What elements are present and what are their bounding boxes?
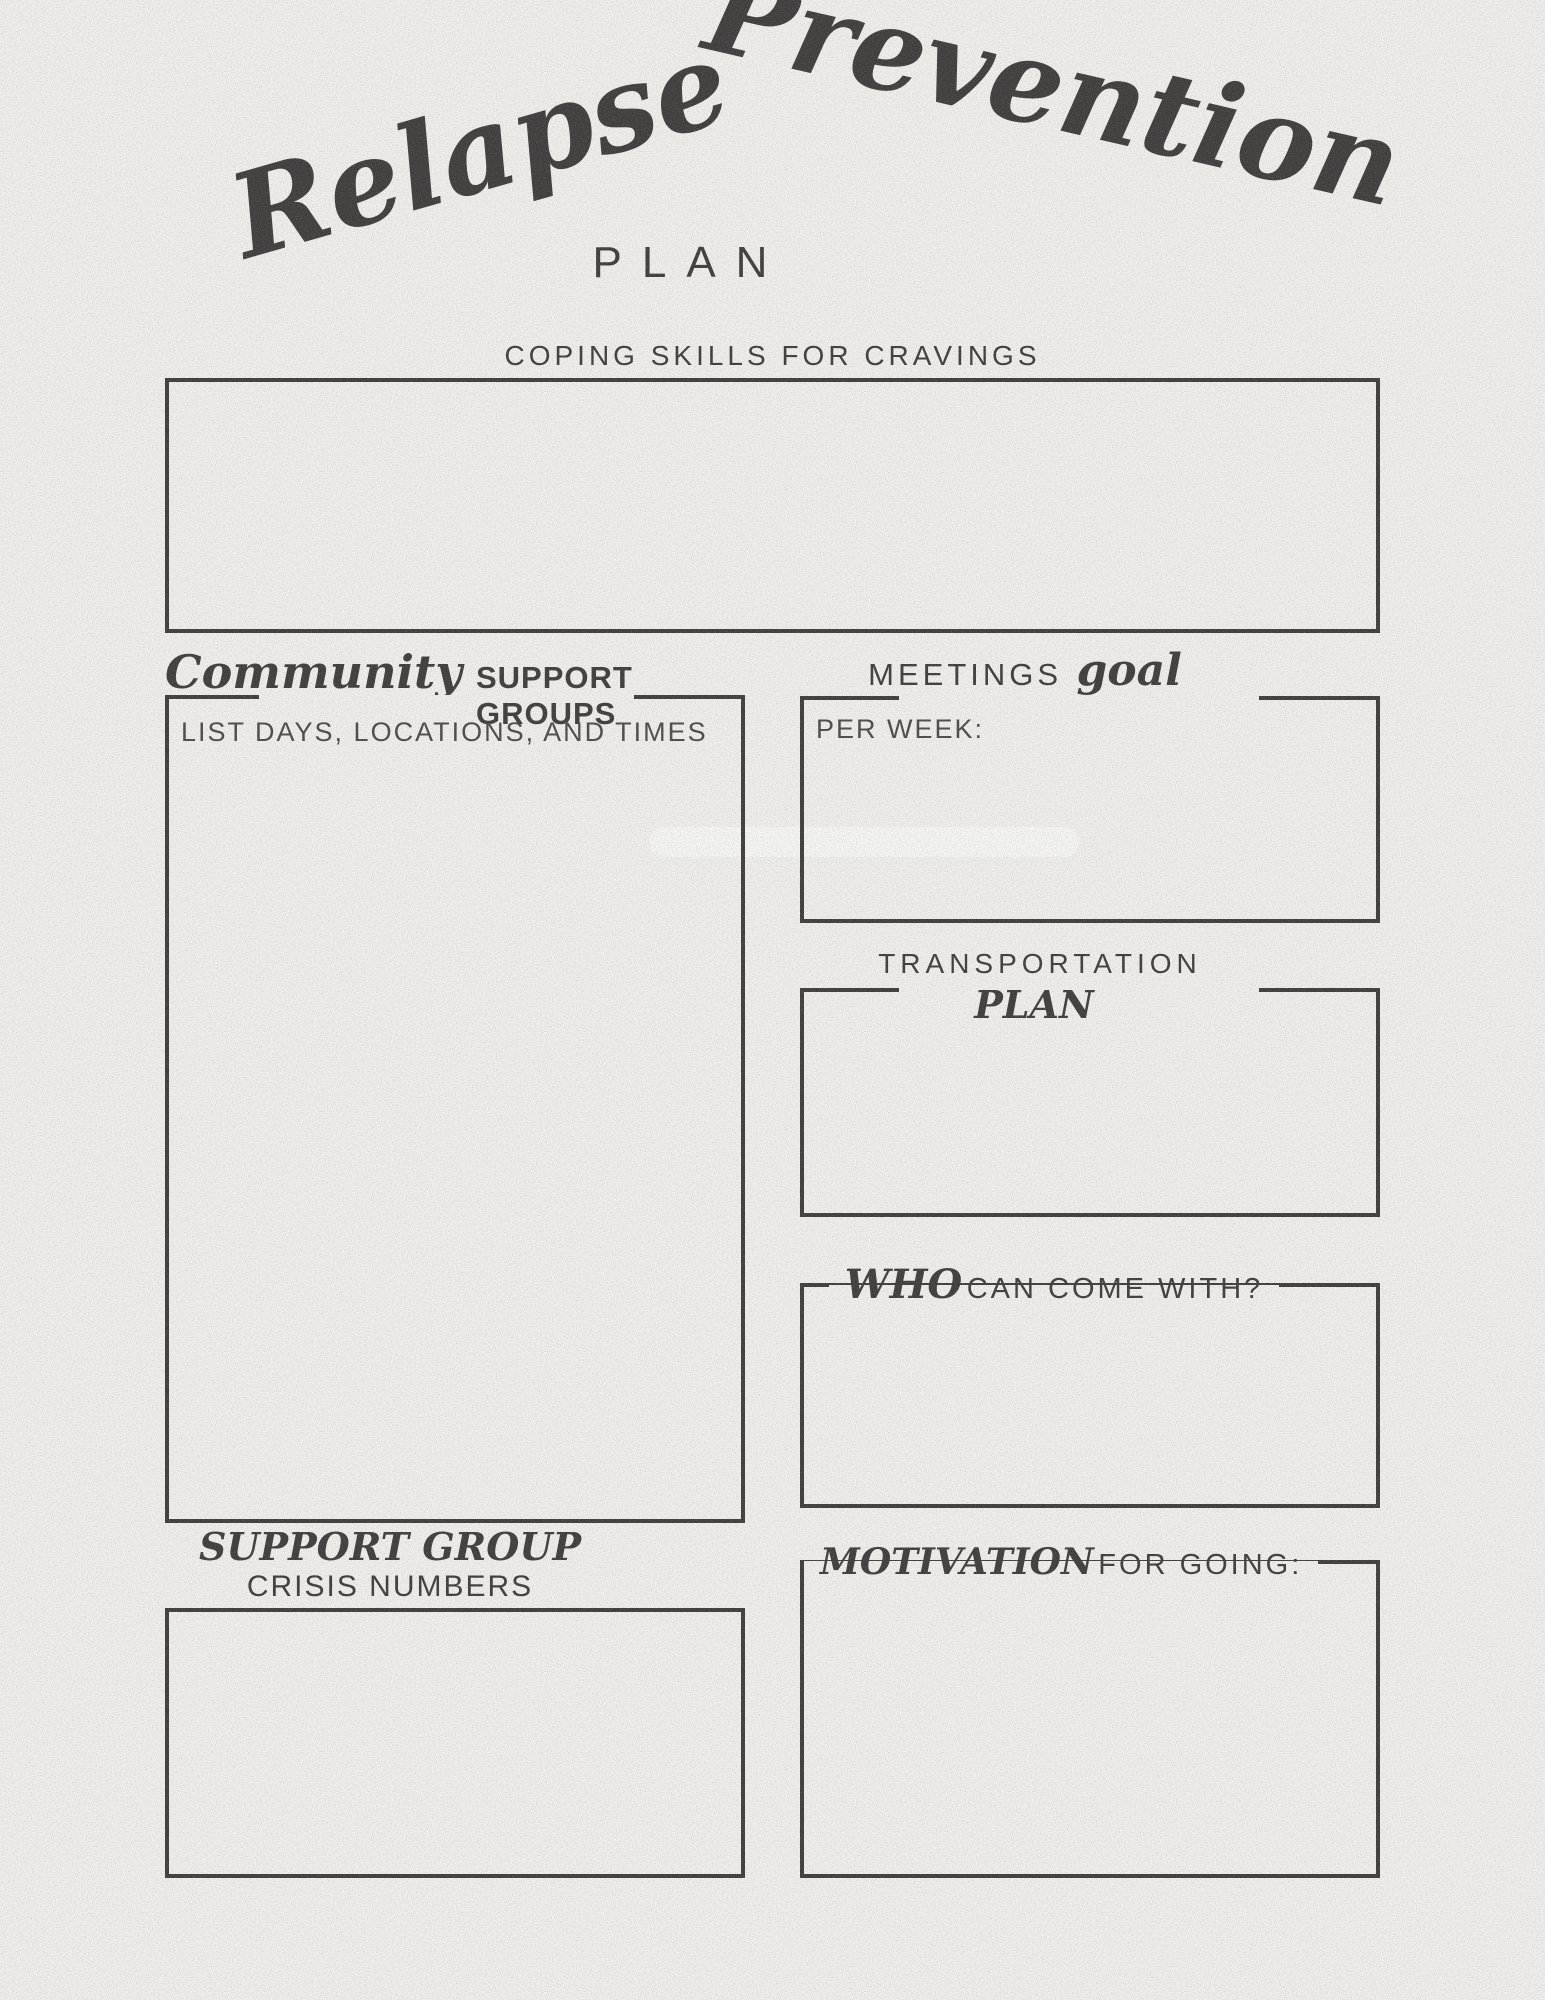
motivation-heading-script: MOTIVATION bbox=[820, 1541, 1094, 1583]
coping-skills-writing-box bbox=[165, 378, 1380, 633]
meetings-heading-script: goal bbox=[1077, 645, 1182, 696]
per-week-label: PER WEEK: bbox=[804, 700, 1376, 745]
meetings-goal-writing-box: PER WEEK: bbox=[800, 696, 1380, 923]
who-can-come-writing-box: WHO CAN COME WITH? bbox=[800, 1283, 1380, 1508]
crisis-numbers-writing-box bbox=[165, 1608, 745, 1878]
motivation-heading-caps: FOR GOING: bbox=[1098, 1549, 1302, 1581]
page-subtitle: PLAN bbox=[380, 238, 980, 288]
who-heading-caps: CAN COME WITH? bbox=[967, 1273, 1264, 1305]
who-can-come-heading: WHO CAN COME WITH? bbox=[804, 1261, 1304, 1318]
meetings-heading-caps: MEETINGS bbox=[868, 657, 1062, 692]
border-gap bbox=[899, 696, 1259, 700]
support-groups-hint: LIST DAYS, LOCATIONS, AND TIMES bbox=[169, 699, 741, 748]
border-gap bbox=[259, 695, 634, 699]
transportation-heading-script: PLAN bbox=[804, 984, 1264, 1026]
coping-skills-label: COPING SKILLS FOR CRAVINGS bbox=[165, 340, 1380, 372]
support-groups-writing-box: LIST DAYS, LOCATIONS, AND TIMES bbox=[165, 695, 745, 1523]
community-heading-script: Community bbox=[165, 645, 462, 699]
transportation-writing-box: PLAN bbox=[800, 988, 1380, 1217]
meetings-goal-heading: MEETINGS goal bbox=[800, 645, 1250, 696]
crisis-heading-script: SUPPORT GROUP bbox=[165, 1524, 615, 1569]
crisis-heading-caps: CRISIS NUMBERS bbox=[165, 1570, 615, 1604]
motivation-writing-box: MOTIVATION FOR GOING: bbox=[800, 1560, 1380, 1878]
who-heading-script: WHO bbox=[845, 1261, 963, 1308]
page-title-word-prevention: Prevention bbox=[696, 0, 1411, 224]
transportation-heading: TRANSPORTATION bbox=[800, 948, 1280, 980]
worksheet-page: { "colors": { "paper": "#f1f0ed", "ink":… bbox=[0, 0, 1545, 2000]
motivation-heading: MOTIVATION FOR GOING: bbox=[804, 1538, 1304, 1594]
